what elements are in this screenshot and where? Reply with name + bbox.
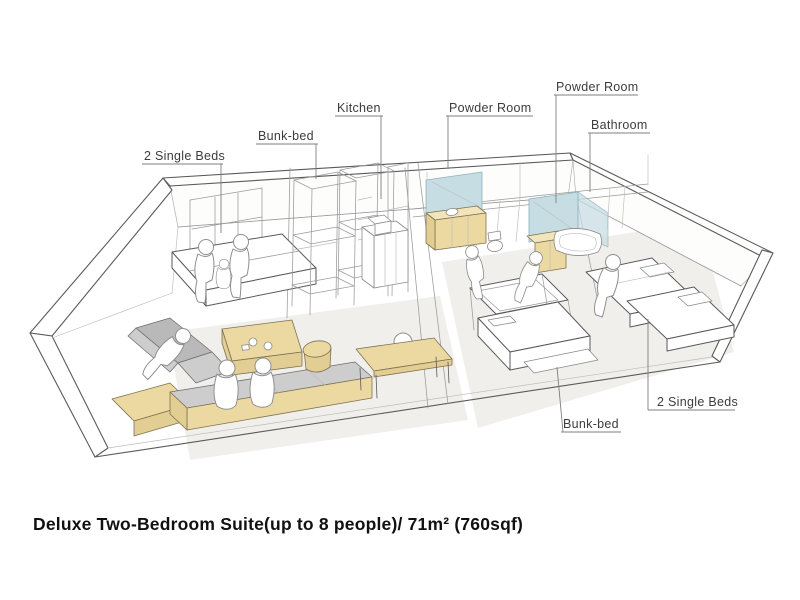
svg-text:Bunk-bed: Bunk-bed: [258, 129, 314, 143]
left-back-wall: [30, 178, 172, 336]
svg-text:Powder Room: Powder Room: [556, 80, 639, 94]
floorplan-illustration: 2 Single Beds Bunk-bed Kitchen Powder Ro…: [0, 0, 800, 600]
toilet-tank: [488, 231, 501, 241]
svg-text:Kitchen: Kitchen: [337, 101, 381, 115]
svg-text:2 Single Beds: 2 Single Beds: [657, 395, 738, 409]
cup: [264, 342, 272, 350]
toilet-bowl: [487, 240, 503, 253]
svg-text:Powder Room: Powder Room: [449, 101, 532, 115]
floorplan-page: 2 Single Beds Bunk-bed Kitchen Powder Ro…: [0, 0, 800, 600]
svg-text:Bunk-bed: Bunk-bed: [563, 417, 619, 431]
front-left-wall: [30, 333, 108, 457]
svg-text:2 Single Beds: 2 Single Beds: [144, 149, 225, 163]
tray: [242, 344, 250, 350]
cup: [249, 338, 257, 346]
caption-title: Deluxe Two-Bedroom Suite(up to 8 people)…: [33, 514, 523, 534]
svg-text:Bathroom: Bathroom: [591, 118, 648, 132]
bathtub: [554, 228, 602, 255]
vanity-front: [435, 213, 486, 250]
